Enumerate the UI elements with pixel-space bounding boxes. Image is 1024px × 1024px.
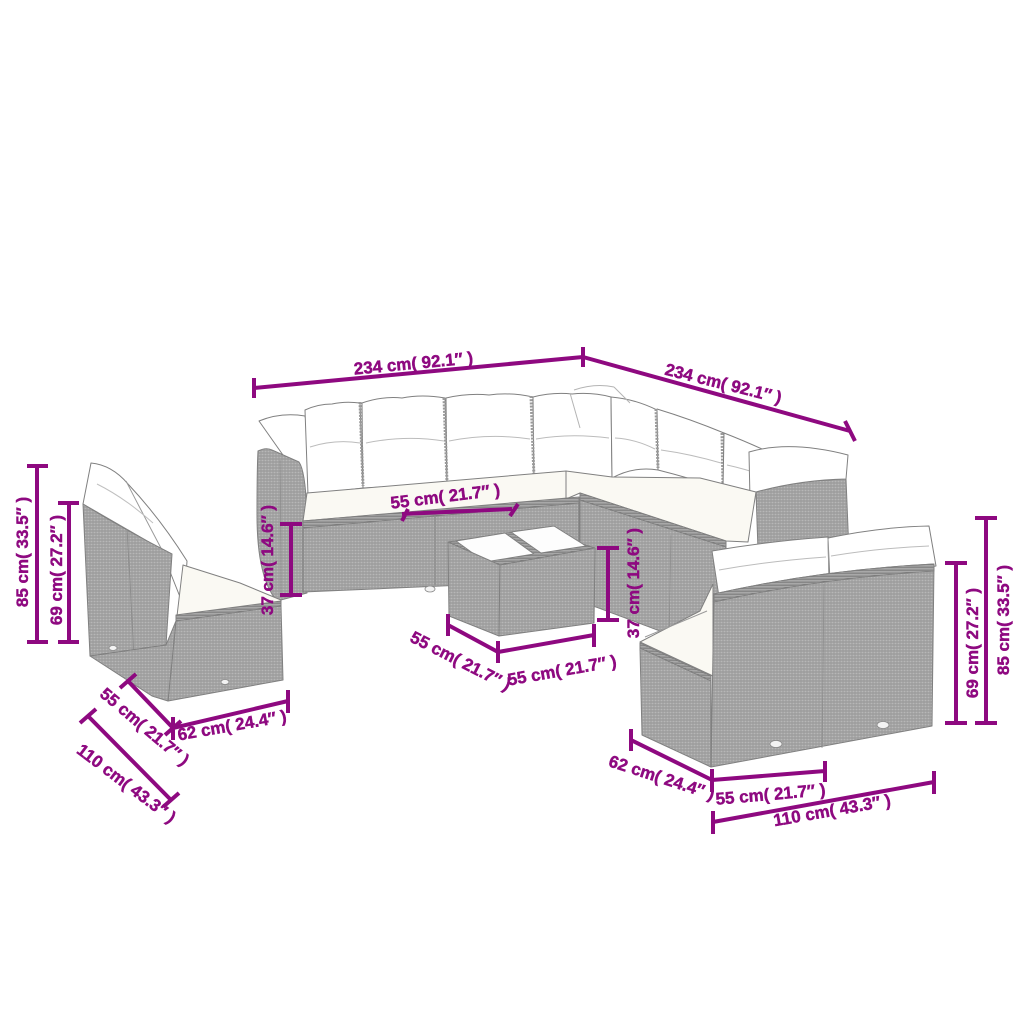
svg-text:37 cm( 14.6″ ): 37 cm( 14.6″ ) xyxy=(624,528,643,638)
svg-text:69 cm( 27.2″ ): 69 cm( 27.2″ ) xyxy=(963,588,982,698)
svg-text:85 cm( 33.5″ ): 85 cm( 33.5″ ) xyxy=(994,565,1013,675)
svg-text:85 cm( 33.5″ ): 85 cm( 33.5″ ) xyxy=(13,497,32,607)
svg-text:69 cm( 27.2″ ): 69 cm( 27.2″ ) xyxy=(47,515,66,625)
svg-text:37 cm( 14.6″ ): 37 cm( 14.6″ ) xyxy=(258,505,277,615)
